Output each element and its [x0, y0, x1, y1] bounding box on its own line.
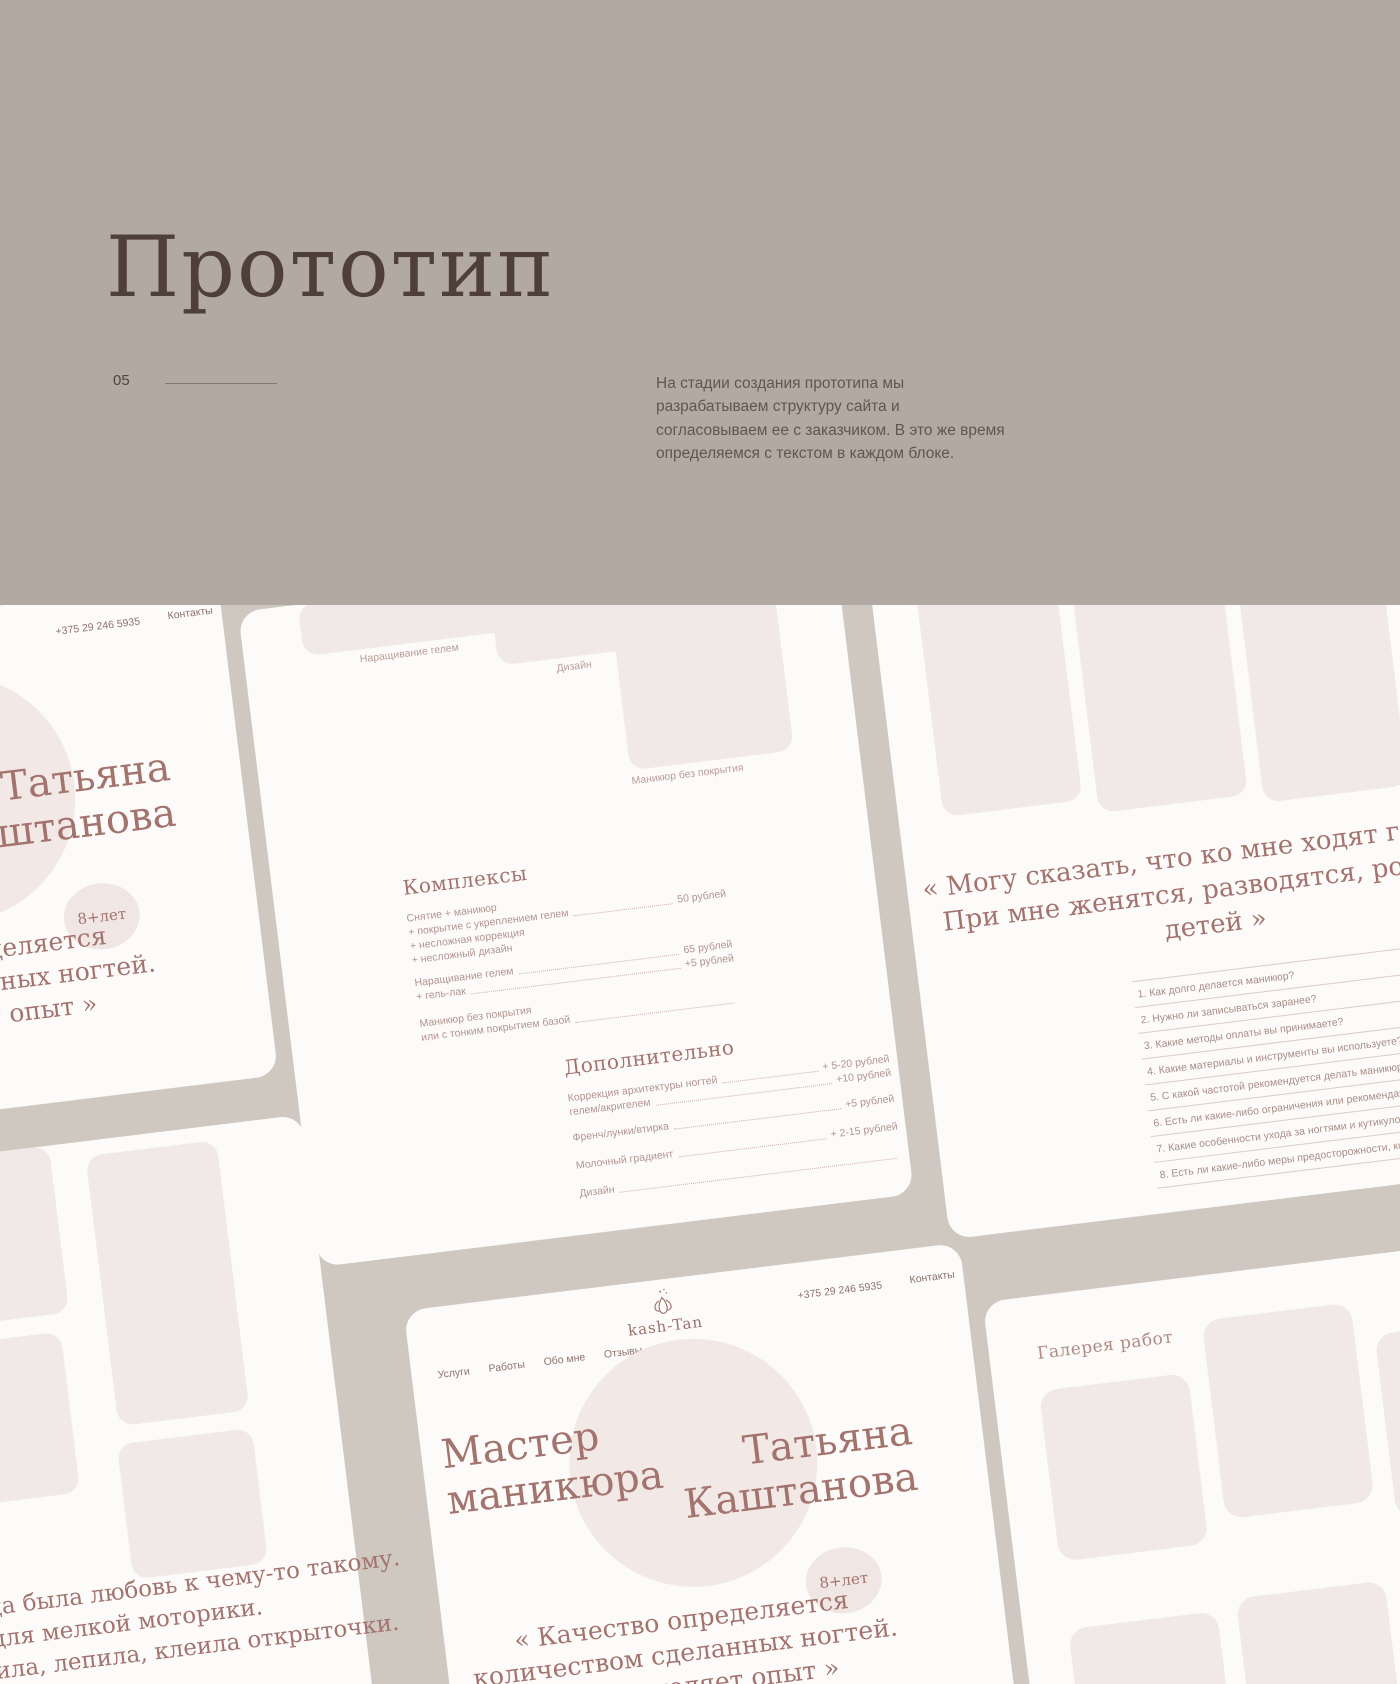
- phone-link[interactable]: +375 29 246 5935: [797, 1280, 883, 1302]
- price-list-complexes: Комплексы Снятие + маникюр + покрытие с …: [401, 837, 739, 1045]
- nav-item-about[interactable]: Обо мне: [543, 1351, 586, 1368]
- section-number: 05: [113, 372, 130, 389]
- prototype-screen-hero-main: kash-Tan Услуги Работы Обо мне Отзывы +3…: [404, 1243, 1021, 1684]
- gallery-tile: [1201, 1302, 1374, 1519]
- hero-quote: « Качество определяетсяколичеством сдела…: [0, 905, 227, 1072]
- prototype-screen-hero-left: kash-Tan Услуги Работы Обо мне Отзывы +3…: [0, 605, 278, 1143]
- photo-tile: [0, 1332, 80, 1513]
- nav-item-services[interactable]: Услуги: [437, 1365, 471, 1381]
- photo-tile: [0, 1146, 69, 1332]
- prototype-screen-gallery: Галерея работ: [983, 1224, 1400, 1684]
- section-number-rule: [165, 383, 277, 384]
- testimonial-quote: « Могу сказать, что ко мне ходят годами.…: [917, 803, 1400, 978]
- hero-title-right: ТатьянаКаштанова: [0, 745, 178, 866]
- photo-tile: [117, 1428, 269, 1580]
- photo-tile: [1227, 605, 1400, 803]
- contacts-link[interactable]: Контакты: [167, 605, 213, 622]
- prototype-collage: kash-Tan Услуги Работы Обо мне Отзывы +3…: [0, 605, 1400, 1684]
- gallery-tile: [1374, 1317, 1400, 1519]
- header-band: Прототип 05 На стадии создания прототипа…: [0, 0, 1400, 605]
- prototype-screen-testimonial-faq: « Могу сказать, что ко мне ходят годами.…: [865, 605, 1400, 1239]
- gallery-tile: [1039, 1373, 1209, 1562]
- photo-tile: [909, 605, 1082, 817]
- section-description: На стадии создания прототипа мы разрабат…: [656, 372, 1076, 465]
- gallery-heading: Галерея работ: [1036, 1327, 1174, 1364]
- contacts-link[interactable]: Контакты: [909, 1269, 955, 1286]
- nav-item-works[interactable]: Работы: [488, 1359, 526, 1375]
- price-list-additional: Дополнительно Коррекция архитектуры ногт…: [563, 1016, 902, 1200]
- service-tile-no-coating: [605, 605, 794, 770]
- gallery-tile: [1236, 1580, 1400, 1684]
- prototype-screen-prices: Наращивание гелем Дизайн Маникюр без пок…: [238, 605, 914, 1267]
- photo-tile: [85, 1140, 249, 1426]
- gallery-tile: [1068, 1611, 1237, 1684]
- photo-tile: [1063, 605, 1248, 813]
- faq-list: 1. Как долго делается маникюр? 2. Нужно …: [1132, 929, 1400, 1189]
- page-title: Прототип: [106, 218, 555, 316]
- page: Прототип 05 На стадии создания прототипа…: [0, 0, 1400, 1684]
- phone-link[interactable]: +375 29 246 5935: [55, 616, 141, 638]
- logo-flower-icon: [647, 1286, 678, 1319]
- logo-text: kash-Tan: [0, 644, 4, 681]
